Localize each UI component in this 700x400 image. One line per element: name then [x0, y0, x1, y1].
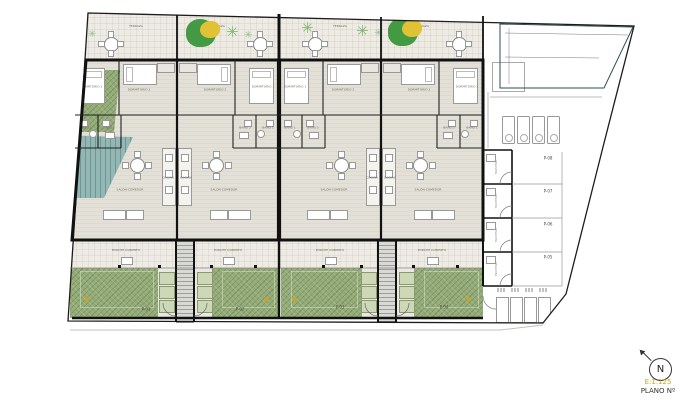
- patio-table-icon: [446, 31, 470, 55]
- shrub-icon: ✸: [263, 296, 270, 304]
- tree-icon: [388, 18, 424, 48]
- parking-stall: [524, 297, 537, 323]
- shrub-icon: ✸: [291, 296, 298, 304]
- room-label: COCINA: [162, 176, 174, 179]
- room-label: DORMITORIO 1: [456, 85, 479, 88]
- sun-lounger-icon: [532, 116, 545, 144]
- palm-tree-icon: ✳: [226, 25, 239, 40]
- room-label: BAÑO 1: [262, 126, 274, 129]
- room-label: SALÓN-COMEDOR: [117, 188, 144, 191]
- room-label: DORMITORIO 2: [408, 88, 431, 91]
- room-label: BAÑO 1: [284, 126, 296, 129]
- planter: [361, 272, 377, 285]
- planter: [361, 286, 377, 299]
- room-label: COCINA: [384, 176, 396, 179]
- planter: [399, 272, 415, 285]
- parking-label: P-08: [544, 156, 553, 161]
- room-label: DORMITORIO 2: [128, 88, 151, 91]
- porch-label: PORCHE CUBIERTO: [112, 248, 141, 252]
- staircase-1: [176, 240, 194, 322]
- parking-stall: [510, 297, 523, 323]
- palm-tree-icon: ✳: [374, 29, 382, 39]
- room-label: BAÑO 2: [307, 126, 319, 129]
- plan-number-label: PLANO Nº: [625, 387, 691, 395]
- unit-4-labels: DORMITORIO 1 DORMITORIO 2 BAÑO 1 BAÑO 2 …: [381, 60, 483, 240]
- garden-label: P-01: [142, 307, 151, 312]
- site-plan: DORMITORIO 1 DORMITORIO 2 BAÑO 1 BAÑO 2 …: [0, 0, 700, 400]
- unit-1: DORMITORIO 1 DORMITORIO 2 BAÑO 1 BAÑO 2 …: [75, 60, 177, 240]
- porch-label: PORCHE CUBIERTO: [418, 248, 447, 252]
- planter: [399, 286, 415, 299]
- staircase-2: [378, 240, 396, 322]
- fixture-icon: [486, 256, 496, 264]
- room-label: BAÑO 2: [103, 126, 115, 129]
- planter: [361, 300, 377, 313]
- terrace-label: TERRAZA: [333, 24, 347, 28]
- room-label: BAÑO 2: [239, 126, 251, 129]
- north-needle-icon: [642, 352, 651, 361]
- room-label: BAÑO 2: [443, 126, 455, 129]
- room-label: SALÓN-COMEDOR: [321, 188, 348, 191]
- room-label: BAÑO 1: [80, 126, 92, 129]
- garden-plot-p02: [212, 268, 279, 318]
- room-label: BAÑO 1: [466, 126, 478, 129]
- garden-label: P-03: [336, 305, 345, 310]
- planter: [197, 300, 213, 313]
- garden-plot-p03: [281, 268, 362, 318]
- terrace-label: TERRAZA: [129, 24, 143, 28]
- floor-plan-sheet: DORMITORIO 1 DORMITORIO 2 BAÑO 1 BAÑO 2 …: [0, 0, 700, 400]
- room-label: DORMITORIO 1: [252, 85, 275, 88]
- planter: [399, 300, 415, 313]
- shrub-icon: ✸: [465, 296, 472, 304]
- unit-2: DORMITORIO 1 DORMITORIO 2 BAÑO 1 BAÑO 2 …: [177, 60, 279, 240]
- parking-label: P-07: [544, 189, 553, 194]
- sun-lounger-icon: [517, 116, 530, 144]
- unit-1-labels: DORMITORIO 1 DORMITORIO 2 BAÑO 1 BAÑO 2 …: [75, 60, 177, 240]
- porch-table-icon: [427, 257, 439, 265]
- room-label: DORMITORIO 1: [284, 85, 307, 88]
- sidewalk-line: [70, 325, 543, 330]
- room-label: DORMITORIO 2: [332, 88, 355, 91]
- porch-label: PORCHE CUBIERTO: [214, 248, 243, 252]
- patio-table-icon: [98, 31, 122, 55]
- planter: [159, 286, 175, 299]
- porch-table-icon: [223, 257, 235, 265]
- sun-lounger-icon: [547, 116, 560, 144]
- north-letter: N: [657, 364, 664, 375]
- planter: [159, 272, 175, 285]
- palm-tree-icon: ✳: [301, 21, 314, 36]
- room-label: DORMITORIO 2: [204, 88, 227, 91]
- shrub-icon: ✸: [83, 296, 90, 304]
- palm-tree-icon: ✳: [88, 30, 96, 40]
- planter: [197, 286, 213, 299]
- unit-2-labels: DORMITORIO 1 DORMITORIO 2 BAÑO 1 BAÑO 2 …: [177, 60, 279, 240]
- palm-tree-icon: ✳: [356, 24, 369, 39]
- parking-stall: [496, 297, 509, 323]
- room-label: SALÓN-COMEDOR: [415, 188, 442, 191]
- room-label: SALÓN-COMEDOR: [211, 188, 238, 191]
- planter: [159, 300, 175, 313]
- planter: [197, 272, 213, 285]
- porch-label: PORCHE CUBIERTO: [316, 248, 345, 252]
- scale-label: E:1.125: [625, 378, 691, 386]
- porch-table-icon: [325, 257, 337, 265]
- pool-deck: [492, 62, 525, 92]
- room-label: COCINA: [180, 176, 192, 179]
- parking-label: P-05: [544, 255, 553, 260]
- unit-3: DORMITORIO 1 DORMITORIO 2 BAÑO 1 BAÑO 2 …: [279, 60, 381, 240]
- garden-label: P-04: [440, 305, 449, 310]
- room-label: COCINA: [366, 176, 378, 179]
- room-label: DORMITORIO 1: [80, 85, 103, 88]
- garden-label: P-02: [236, 307, 245, 312]
- palm-tree-icon: ✳: [70, 22, 83, 37]
- palm-tree-icon: ✳: [244, 31, 252, 41]
- garden-plot-p04: [414, 268, 483, 318]
- porch-table-icon: [121, 257, 133, 265]
- fixture-icon: [486, 188, 496, 196]
- unit-4: DORMITORIO 1 DORMITORIO 2 BAÑO 1 BAÑO 2 …: [381, 60, 483, 240]
- unit-3-labels: DORMITORIO 1 DORMITORIO 2 BAÑO 1 BAÑO 2 …: [279, 60, 381, 240]
- fixture-icon: [486, 222, 496, 230]
- sun-lounger-icon: [502, 116, 515, 144]
- tree-icon: [186, 19, 222, 49]
- parking-stall: [538, 297, 551, 323]
- parking-label: P-06: [544, 222, 553, 227]
- fixture-icon: [486, 154, 496, 162]
